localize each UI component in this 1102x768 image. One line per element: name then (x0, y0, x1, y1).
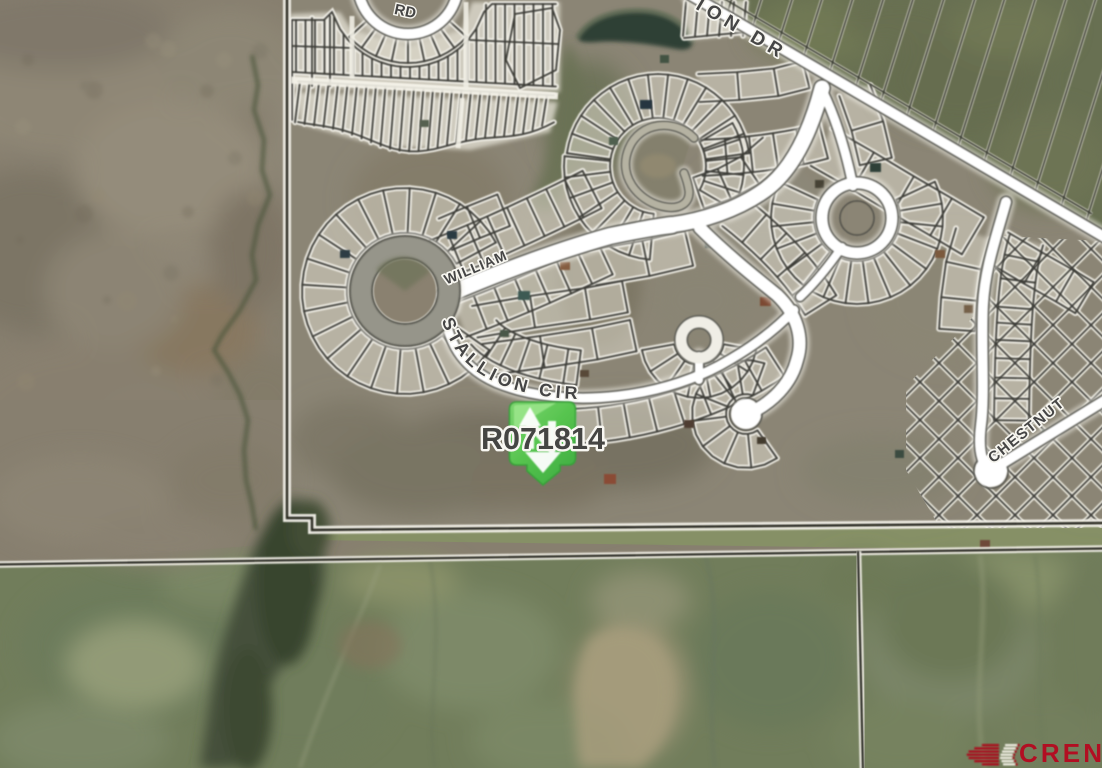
svg-text:R071814: R071814 (481, 422, 605, 456)
